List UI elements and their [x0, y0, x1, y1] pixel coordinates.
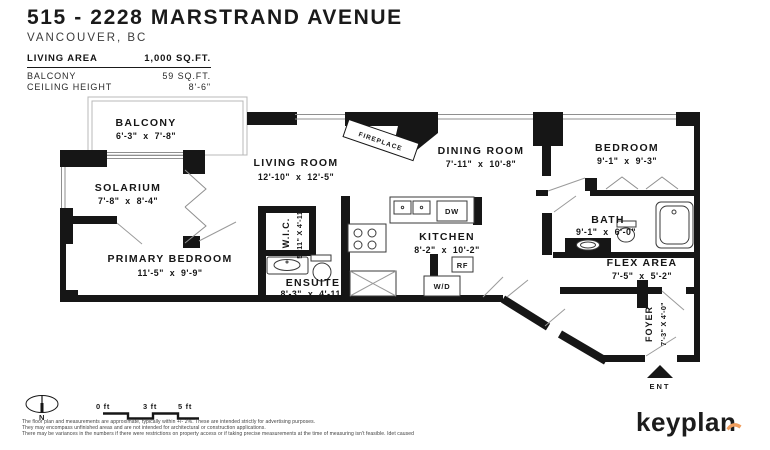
room-dims-primary: 11'-5" x 9'-9": [137, 268, 202, 278]
room-dims-ensuite: 8'-3" x 4'-11": [280, 289, 345, 299]
room-label-kitchen: KITCHEN: [419, 231, 475, 243]
closet-chevrons: [606, 177, 678, 189]
room-label-balcony: BALCONY: [115, 117, 176, 129]
entry-marker: ENT: [647, 365, 673, 391]
bath-sink: [577, 240, 600, 250]
refrigerator-label: RF: [457, 261, 468, 270]
dishwasher-label: DW: [445, 207, 459, 216]
laundry-closet: [350, 271, 396, 296]
room-label-wic: W.I.C.: [281, 218, 291, 249]
dishwasher: DW: [437, 201, 467, 221]
keyplan-logo: keyplan: [636, 407, 736, 438]
stove: [348, 224, 386, 252]
entry-label: ENT: [650, 382, 671, 391]
floor-plan-drawing: FIREPLACE DW RF W/D: [0, 0, 770, 450]
washer-dryer: W/D: [424, 276, 460, 296]
room-dims-kitchen: 8'-2" x 10'-2": [414, 245, 480, 255]
room-label-primary: PRIMARY BEDROOM: [107, 253, 232, 265]
room-dims-wic: 5'-11" X 4'-11": [295, 207, 304, 259]
room-label-solarium: SOLARIUM: [95, 182, 161, 194]
room-label-ensuite: ENSUITE: [286, 277, 341, 289]
room-dims-foyer: 7'-3" X 4'-0": [659, 302, 668, 346]
room-dims-bath: 9'-1" x 6'-0": [576, 227, 636, 237]
room-dims-flex: 7'-5" x 5'-2": [612, 271, 672, 281]
floorplan-page: 515 - 2228 MARSTRAND AVENUE VANCOUVER, B…: [0, 0, 770, 450]
room-label-living: LIVING ROOM: [254, 157, 339, 169]
room-label-foyer: FOYER: [644, 306, 654, 342]
disclaimer-text: The floor plan and measurements are appr…: [22, 420, 562, 437]
keyplan-logo-text: keyplan: [636, 407, 736, 437]
north-compass-icon: N: [26, 395, 58, 422]
room-dims-solarium: 7'-8" x 8'-4": [98, 196, 158, 206]
scale-tick-3: 3 ft: [143, 402, 157, 411]
room-dims-dining: 7'-11" x 10'-8": [446, 159, 516, 169]
disclaimer-line: There may be variances in the numbers if…: [22, 432, 562, 438]
refrigerator: RF: [452, 257, 473, 272]
room-dims-balcony: 6'-3" x 7'-8": [116, 131, 176, 141]
washer-dryer-label: W/D: [434, 282, 451, 291]
room-label-dining: DINING ROOM: [438, 145, 525, 157]
room-label-flex: FLEX AREA: [607, 257, 678, 269]
room-dims-bedroom: 9'-1" x 9'-3": [597, 156, 657, 166]
scale-bar: 0 ft 3 ft 5 ft: [96, 402, 199, 419]
bathtub: [656, 202, 693, 248]
scale-tick-0: 0 ft: [96, 402, 110, 411]
room-label-bath: BATH: [591, 214, 625, 226]
bay-window-chevrons: [185, 170, 206, 243]
room-dims-living: 12'-10" x 12'-5": [258, 172, 334, 182]
keyplan-swoosh-icon: [726, 407, 742, 438]
scale-tick-5: 5 ft: [178, 402, 192, 411]
room-label-bedroom: BEDROOM: [595, 142, 659, 154]
entry-arrow-icon: [647, 365, 673, 378]
